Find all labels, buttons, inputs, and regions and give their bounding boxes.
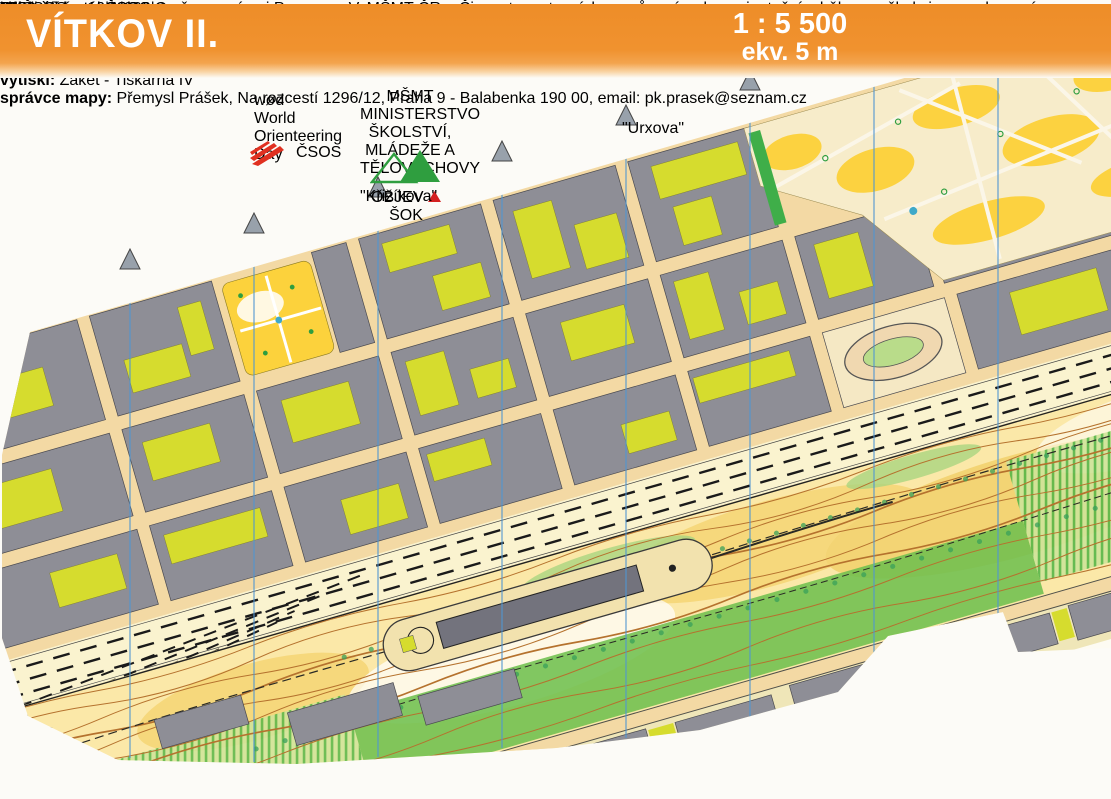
msmt-wordmark: MŠMT [360, 88, 460, 106]
street-label-krizikova: "Křižíkova" [360, 188, 437, 206]
footer-band [0, 758, 1111, 794]
map-svg [0, 0, 1111, 794]
orienteering-map [0, 0, 1111, 799]
objev-sok-logo: OBJEV ŠOK [358, 148, 454, 225]
csos-wordmark: ČSOS [296, 144, 341, 162]
sok-text: ŠOK [389, 207, 423, 224]
street-label-urxova: "Urxova" [622, 120, 684, 138]
map-equivalence: ekv. 5 m [690, 39, 890, 65]
page-title: VÍTKOV II. [26, 12, 219, 57]
wod-wordmark: wød [254, 92, 342, 110]
map-scale: 1 : 5 500 [690, 9, 890, 39]
objev-sok-triangles-icon [370, 148, 442, 184]
map-rotated-content [0, 0, 1111, 794]
csos-logo: ČSOS [250, 140, 341, 166]
map-scale-block: 1 : 5 500 ekv. 5 m [690, 9, 890, 65]
csos-stripes-icon [250, 140, 290, 166]
